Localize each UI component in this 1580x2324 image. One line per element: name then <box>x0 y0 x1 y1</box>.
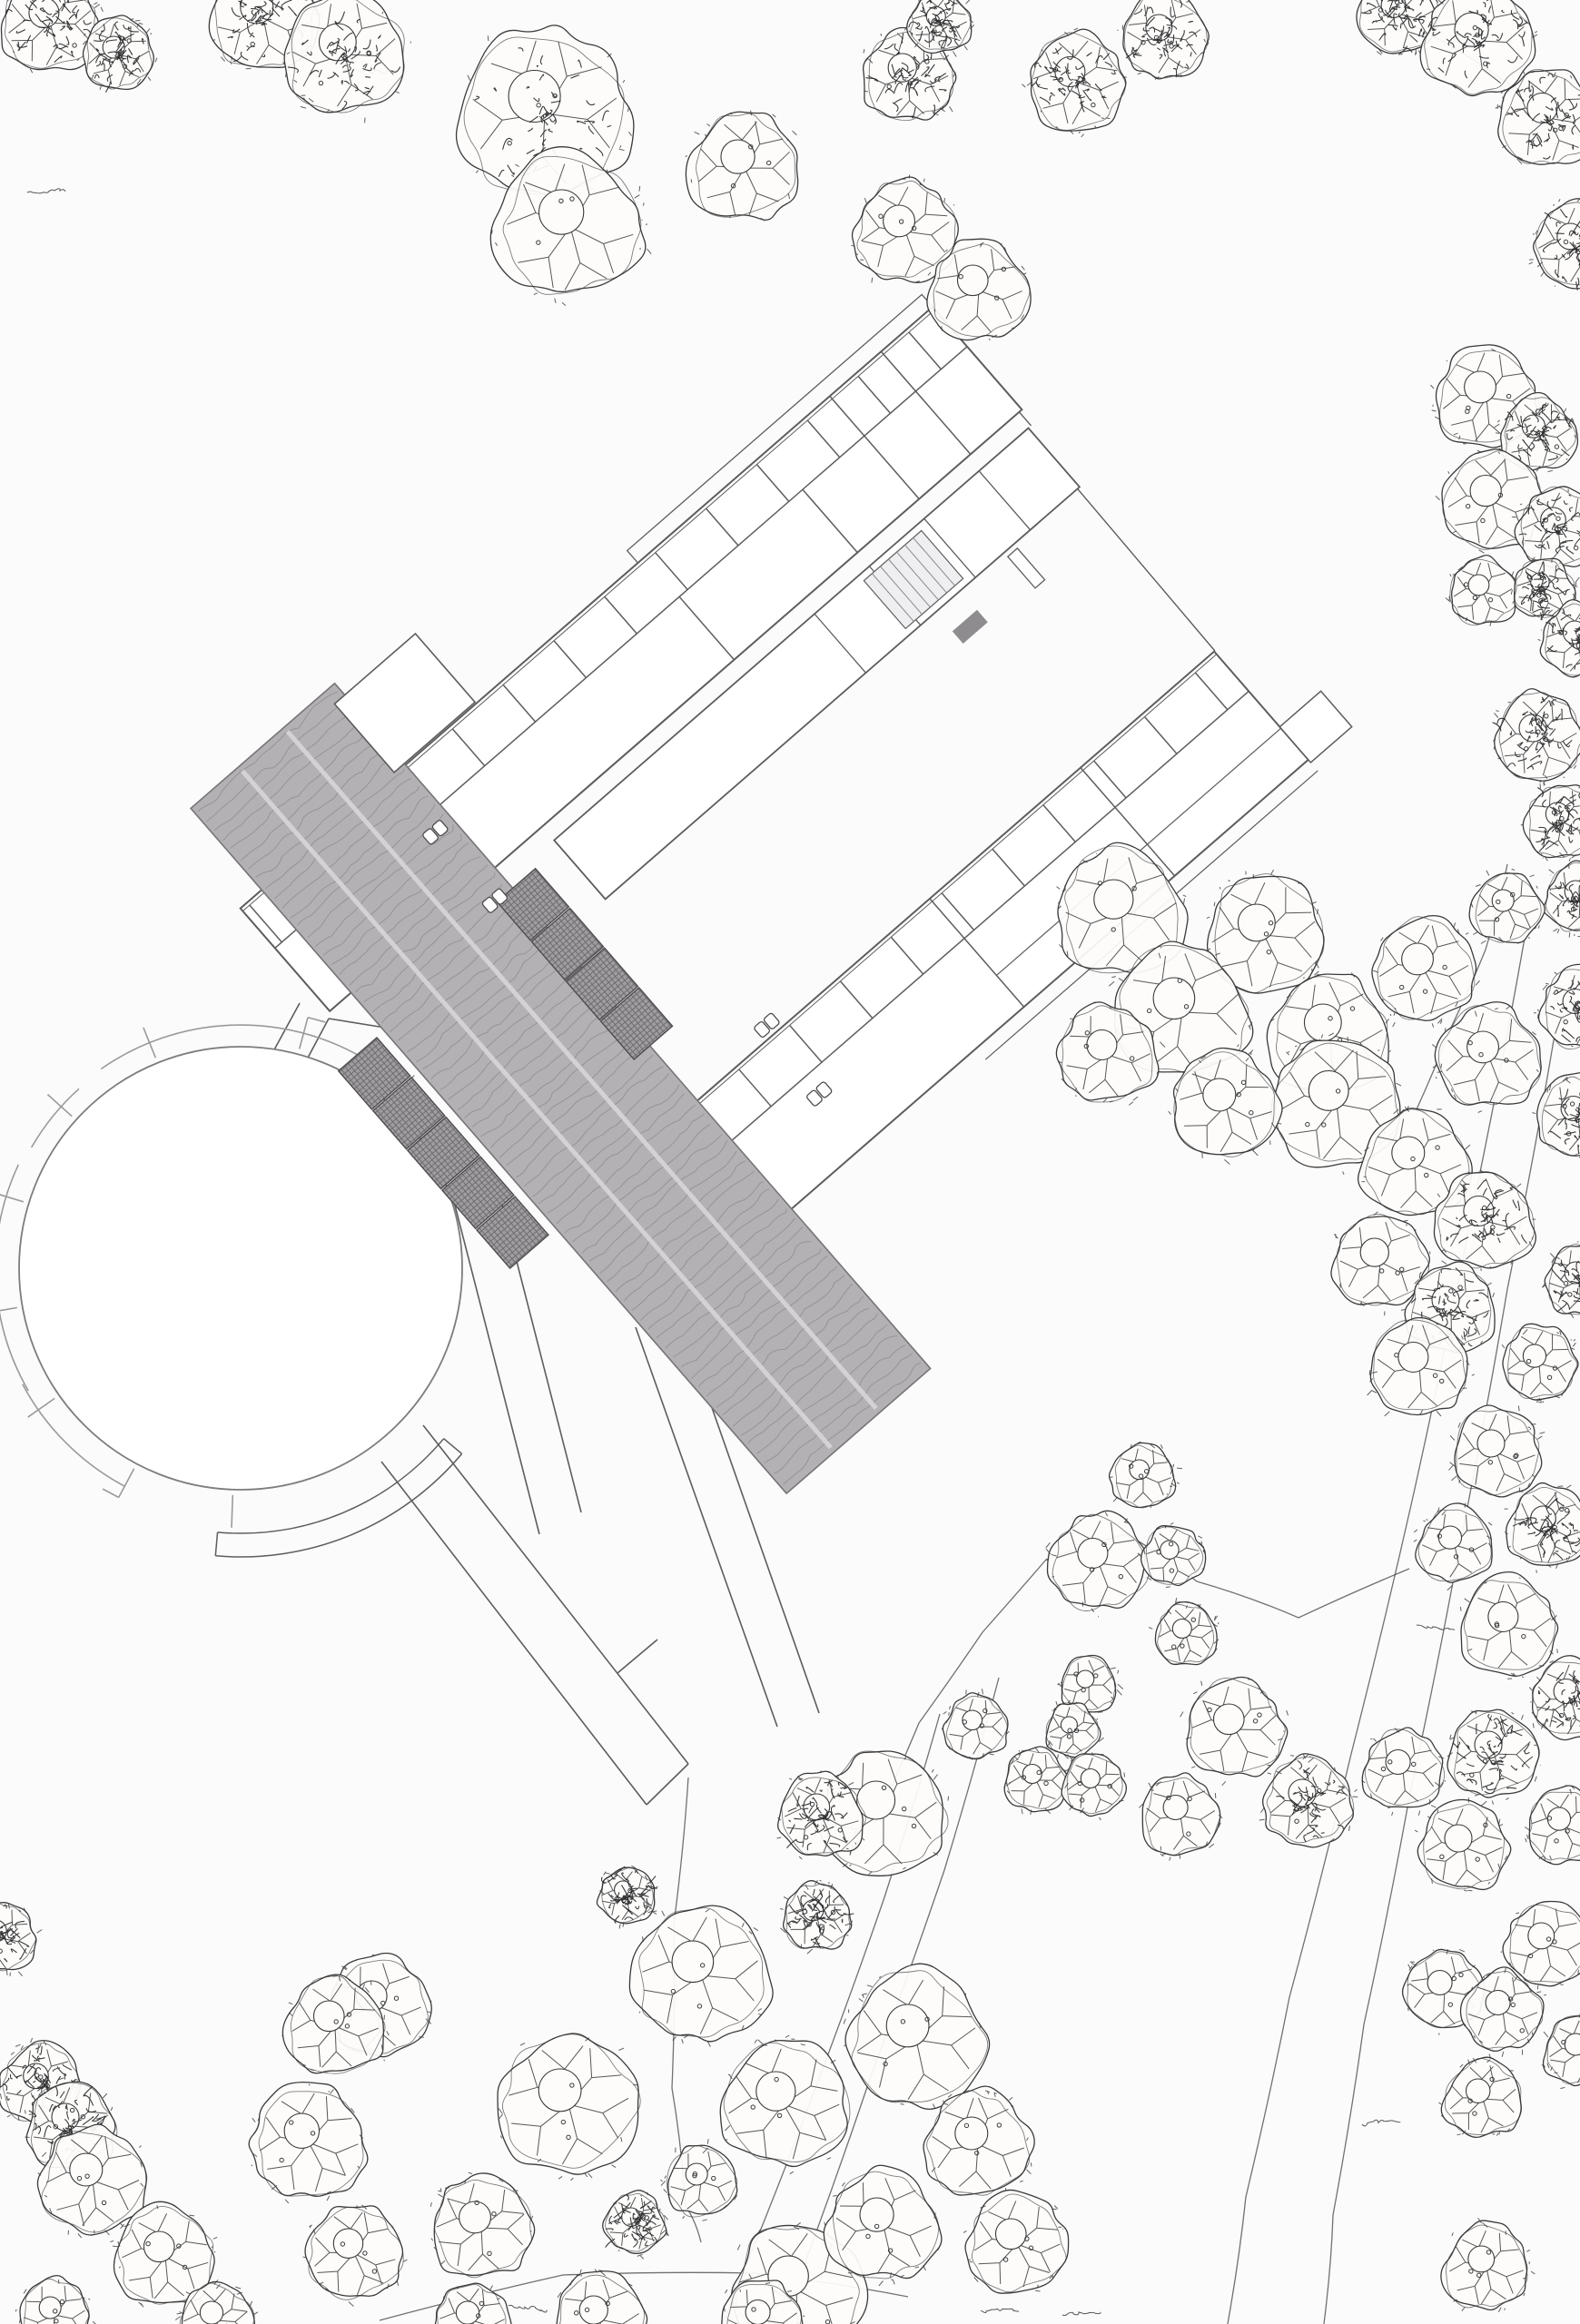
tree-crown-highlight <box>538 2069 581 2112</box>
tree-crown-highlight <box>1477 1430 1505 1457</box>
tree-crown-highlight <box>39 2297 61 2319</box>
tree-crown-highlight <box>1203 1078 1236 1111</box>
tree-crown-highlight <box>1465 371 1496 403</box>
tree-crown-highlight <box>1528 1923 1555 1949</box>
tree-crown-highlight <box>672 1941 714 1983</box>
tree-crown-highlight <box>1468 2246 1495 2272</box>
tree-crown-highlight <box>1022 1765 1042 1784</box>
tree-crown-highlight <box>1238 904 1275 941</box>
tree-crown-highlight <box>1488 1602 1518 1632</box>
tree-crown-highlight <box>1153 978 1195 1019</box>
tree-crown-highlight <box>1523 1344 1545 1367</box>
tree-crown-highlight <box>1308 1071 1348 1111</box>
tree-crown-highlight <box>1464 1196 1494 1226</box>
tree-crown-highlight <box>1213 1704 1244 1735</box>
tree-crown-highlight <box>70 2153 103 2186</box>
tree-crown-highlight <box>1360 1238 1388 1266</box>
tree-crown-highlight <box>955 2117 988 2150</box>
site-plan-canvas <box>0 0 1580 2324</box>
tree-crown-highlight <box>1081 1769 1100 1788</box>
tree-crown-highlight <box>1398 1343 1428 1373</box>
tree-canopy-outline <box>1123 0 1209 79</box>
tree-crown-highlight <box>459 2201 491 2233</box>
tree-crown-highlight <box>860 2198 894 2231</box>
tree-crown-highlight <box>1087 1030 1117 1060</box>
tree-crown-highlight <box>1467 1031 1499 1063</box>
tree-crown-highlight <box>333 2229 362 2258</box>
tree-crown-highlight <box>1172 1620 1191 1639</box>
tree-crown-highlight <box>1492 890 1514 911</box>
tree-crown-highlight <box>746 2300 770 2324</box>
tree-crown-highlight <box>456 2301 479 2324</box>
tree-crown-highlight <box>1438 1526 1461 1549</box>
tree-crown-highlight <box>1304 1004 1341 1041</box>
tree-crown-highlight <box>1077 1670 1094 1688</box>
tree-crown-highlight <box>579 2296 607 2324</box>
tree-crown-highlight <box>857 1781 895 1819</box>
tree-crown-highlight <box>1486 1991 1510 2015</box>
tree-crown-highlight <box>1402 943 1434 975</box>
tree-crown-highlight <box>313 2001 344 2032</box>
tree-crown-highlight <box>1392 1137 1425 1169</box>
tree-crown-highlight <box>539 190 584 234</box>
tree-crown-highlight <box>200 2301 222 2324</box>
site-plan-page <box>0 0 1580 2324</box>
tree-crown-highlight <box>886 2004 929 2047</box>
tree-crown-highlight <box>1427 1971 1452 1995</box>
tree-crown-highlight <box>1470 476 1501 507</box>
tree-crown-highlight <box>1386 1750 1410 1775</box>
tree-crown-highlight <box>957 265 988 296</box>
tree-crown-highlight <box>143 2231 174 2262</box>
tree-crown-highlight <box>1468 575 1489 596</box>
tree-crown-highlight <box>1445 1825 1472 1852</box>
tree-crown-highlight <box>995 2219 1026 2250</box>
tree-crown-highlight <box>1527 94 1557 123</box>
tree-crown-highlight <box>284 2113 319 2148</box>
